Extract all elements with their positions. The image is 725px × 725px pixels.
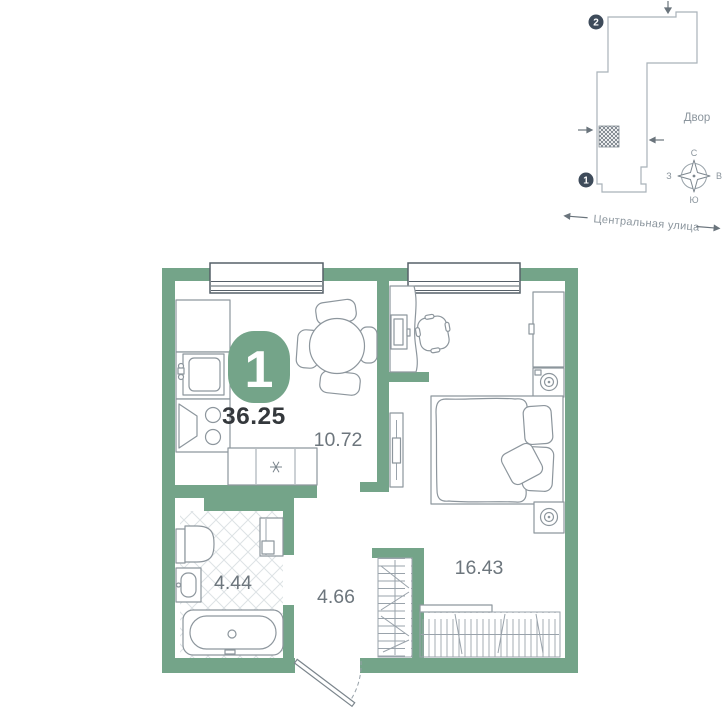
toilet-icon bbox=[176, 526, 214, 563]
svg-text:1: 1 bbox=[583, 176, 589, 187]
site-plan: 2 1 Двор С В Ю З Центральная улица bbox=[564, 1, 722, 235]
svg-text:Ю: Ю bbox=[689, 195, 698, 205]
svg-text:С: С bbox=[691, 148, 698, 158]
building-entrance-arrow-right-icon bbox=[650, 138, 664, 143]
dining-table-and-chairs bbox=[296, 298, 377, 396]
window-bedroom bbox=[408, 263, 520, 293]
desk-chair bbox=[413, 312, 453, 355]
svg-text:2: 2 bbox=[593, 18, 599, 29]
entrance-door bbox=[294, 659, 361, 706]
street-label: Центральная улица bbox=[593, 213, 700, 234]
building-marker-1: 1 bbox=[579, 173, 594, 188]
desk bbox=[390, 286, 417, 372]
total-area: 36.25 bbox=[222, 403, 286, 430]
bed bbox=[431, 396, 563, 504]
apartment-badge: 1 bbox=[228, 331, 290, 403]
building-outline bbox=[597, 12, 697, 192]
bedroom-wardrobe-hangers bbox=[420, 605, 560, 657]
street-row: Центральная улица bbox=[564, 211, 719, 235]
tv-console bbox=[390, 413, 403, 487]
bathroom-shelf bbox=[260, 518, 283, 556]
apartment-plan-page: 2 1 Двор С В Ю З Центральная улица bbox=[0, 0, 725, 725]
street-arrow-left-icon bbox=[564, 213, 587, 220]
compass-icon: С В Ю З bbox=[666, 148, 722, 205]
svg-text:В: В bbox=[716, 171, 722, 181]
kitchen-sink-icon bbox=[178, 354, 224, 395]
room-area-bathroom: 4.44 bbox=[214, 572, 252, 594]
room-area-kitchen-living: 10.72 bbox=[314, 429, 363, 451]
floor-plan: 1 36.25 10.72 16.43 4.44 4.66 bbox=[162, 263, 578, 706]
bathroom-niche bbox=[180, 498, 204, 511]
room-area-bedroom: 16.43 bbox=[455, 557, 504, 579]
rooms-count: 1 bbox=[245, 341, 274, 399]
building-marker-2: 2 bbox=[589, 15, 604, 30]
hallway-closet-hangers bbox=[378, 558, 412, 657]
bathroom-sink-icon bbox=[176, 568, 201, 602]
plan-drawing: 2 1 Двор С В Ю З Центральная улица bbox=[0, 0, 725, 725]
room-area-hallway: 4.66 bbox=[317, 586, 355, 608]
building-entrance-arrow-left-icon bbox=[578, 128, 592, 133]
bedside-table-lamp-bottom-icon bbox=[534, 502, 564, 533]
svg-text:З: З bbox=[666, 171, 671, 181]
wardrobe bbox=[529, 292, 564, 367]
bathtub-icon bbox=[183, 610, 283, 655]
courtyard-label: Двор bbox=[684, 112, 711, 124]
apartment-location-hatch bbox=[599, 126, 619, 147]
bedside-table-lamp-top-icon bbox=[533, 368, 564, 397]
window-kitchen bbox=[210, 263, 323, 293]
building-entrance-arrow-top-icon bbox=[665, 1, 671, 13]
